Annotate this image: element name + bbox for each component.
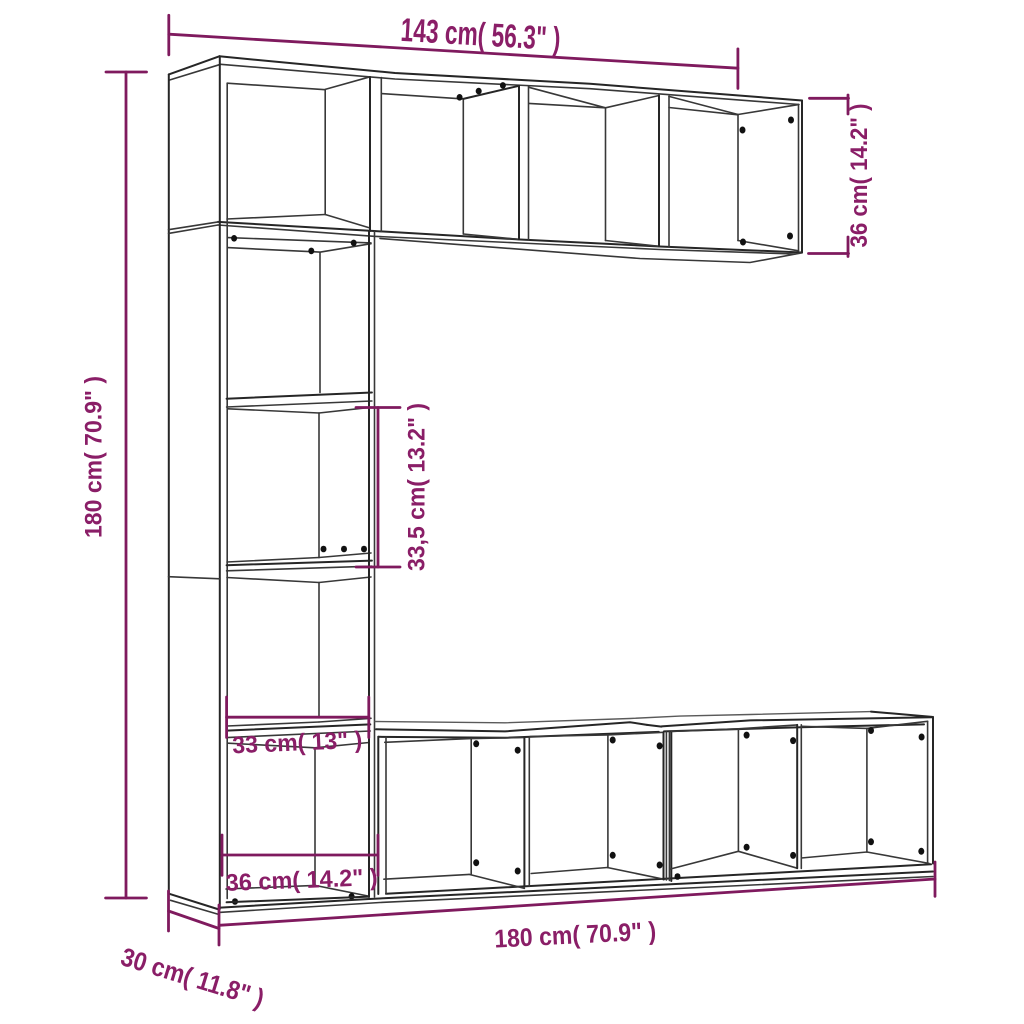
svg-text:33,5 cm( 13.2" ): 33,5 cm( 13.2" ) bbox=[404, 403, 431, 571]
svg-text:33 cm( 13" ): 33 cm( 13" ) bbox=[232, 727, 363, 760]
svg-text:36 cm( 14.2" ): 36 cm( 14.2" ) bbox=[846, 104, 873, 248]
svg-text:180 cm( 70.9" ): 180 cm( 70.9" ) bbox=[80, 376, 107, 538]
